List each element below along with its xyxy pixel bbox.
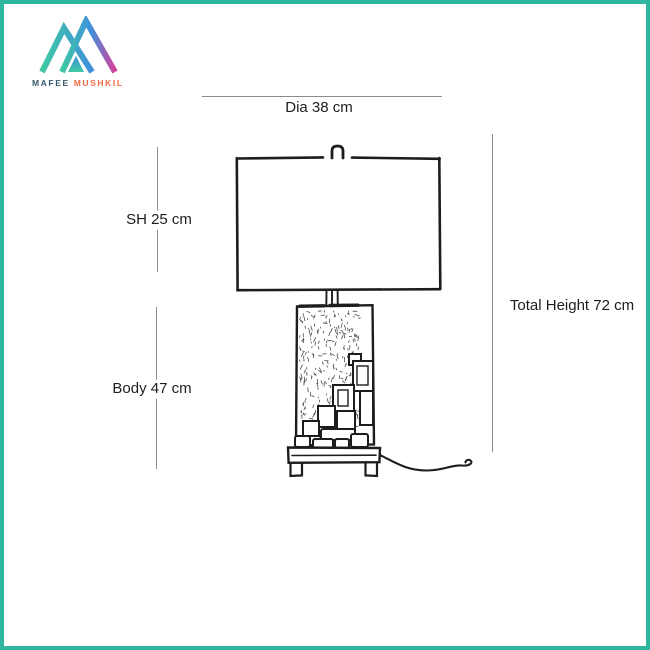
- brand-wordmark: MAFEE MUSHKIL: [32, 78, 128, 88]
- stone-texture: [299, 310, 362, 442]
- body-height-label: Body 47 cm: [108, 380, 195, 399]
- brand-name-primary: MAFEE: [32, 78, 70, 88]
- lamp-shade: [237, 157, 440, 290]
- total-height-dimension-line: [492, 134, 493, 452]
- brand-name-secondary: MUSHKIL: [74, 78, 124, 88]
- lamp-base: [288, 448, 380, 477]
- lamp-body: [295, 305, 374, 448]
- lamp-finial: [332, 146, 343, 158]
- shade-height-label: SH 25 cm: [122, 211, 196, 230]
- power-cord: [380, 455, 471, 471]
- product-dimension-diagram: MAFEE MUSHKIL Dia 38 cm SH 25 cm Body 47…: [0, 0, 650, 650]
- brand-logo: MAFEE MUSHKIL: [32, 16, 128, 88]
- brand-logo-m-icon: [34, 16, 122, 76]
- diameter-dimension-line: [202, 96, 442, 97]
- diameter-label: Dia 38 cm: [281, 99, 357, 118]
- shade-height-dimension-line: [157, 147, 158, 272]
- lamp-stem: [326, 291, 338, 307]
- geometric-cut-pattern: [295, 354, 373, 448]
- total-height-label: Total Height 72 cm: [506, 297, 638, 316]
